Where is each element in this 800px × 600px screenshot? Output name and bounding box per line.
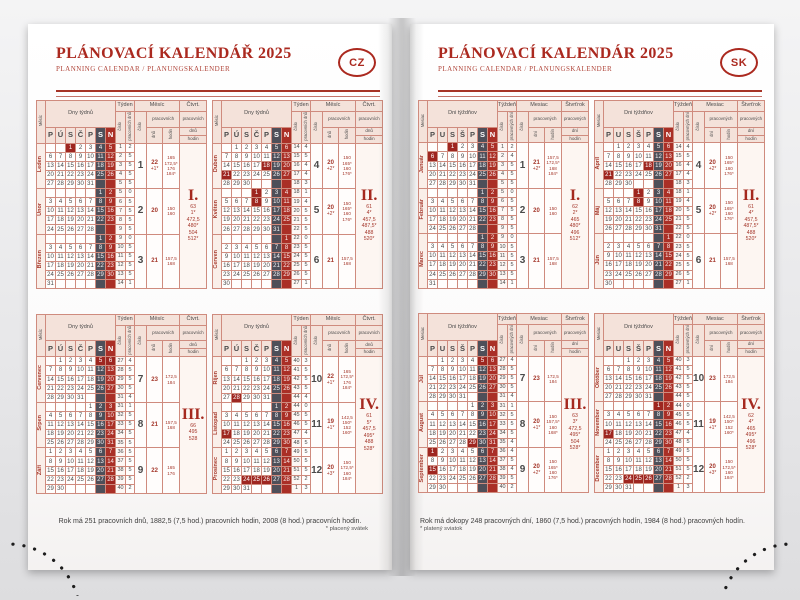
day-cell — [282, 484, 292, 493]
week-number-cell: 13 — [498, 270, 508, 279]
day-cell: 27 — [614, 225, 624, 234]
day-cell — [282, 280, 292, 289]
day-cell: 30 — [66, 393, 76, 402]
month-workdays-cell: 19+1* — [323, 402, 339, 448]
month-hours-header: hodín — [721, 341, 738, 357]
day-letter-6: S — [272, 341, 282, 357]
day-cell — [272, 393, 282, 402]
week-workdays-cell: 2 — [302, 475, 311, 484]
day-cell: 29 — [654, 438, 664, 447]
week-number-label: číslo — [500, 122, 504, 131]
day-cell: 3 — [262, 357, 272, 366]
day-cell — [222, 234, 232, 243]
day-letter-6: S — [478, 341, 488, 357]
month-hours-label: hodín — [727, 129, 731, 139]
day-cell: 28 — [614, 393, 624, 402]
day-cell: 13 — [644, 252, 654, 261]
day-cell: 1 — [478, 188, 488, 197]
day-cell — [488, 279, 498, 288]
month-hours-75: 150165* — [545, 459, 561, 470]
day-cell: 27 — [634, 438, 644, 447]
day-cell: 24 — [468, 170, 478, 179]
week-workdays-cell: 5 — [684, 384, 693, 393]
day-cell: 9 — [458, 152, 468, 161]
month-hours-cell: 150165*160176* — [545, 447, 562, 492]
weekday-group-header: Dny týdnů — [222, 101, 292, 128]
month-hours-wrap: 150157,5*160168* — [545, 412, 561, 437]
day-cell: 1 — [634, 188, 644, 197]
week-workdays-cell: 0 — [126, 189, 135, 198]
month-name-label: Prosinec — [214, 457, 220, 480]
day-cell: 6 — [272, 448, 282, 457]
day-cell: 11 — [654, 365, 664, 374]
week-row: Duben123456144420+2*150165*160176*II.614… — [213, 143, 383, 152]
day-cell: 4 — [478, 143, 488, 152]
day-cell — [634, 234, 644, 243]
month-workdays-cell: 20+1* — [529, 402, 545, 447]
day-cell — [624, 234, 634, 243]
month-column-label: Měsíc — [39, 329, 43, 340]
week-workdays-cell: 5 — [508, 420, 517, 429]
day-cell: 28 — [468, 270, 478, 279]
month-number-label: číslo — [138, 122, 142, 131]
day-cell: 15 — [66, 161, 76, 170]
week-number-cell: 16 — [674, 161, 684, 170]
day-cell: 29 — [252, 225, 262, 234]
day-cell: 27 — [428, 179, 438, 188]
month-name-cell: Júl — [419, 356, 428, 401]
day-cell: 3 — [106, 402, 116, 411]
week-number-cell: 27 — [116, 357, 126, 366]
day-cell: 3 — [46, 243, 56, 252]
month-workdays-value: 19 — [705, 419, 720, 425]
quarter-days-hours-header: dníhodín — [562, 127, 589, 143]
day-cell — [96, 180, 106, 189]
day-cell — [76, 234, 86, 243]
day-cell: 31 — [468, 179, 478, 188]
day-letter-4: Č — [252, 341, 262, 357]
day-cell: 29 — [86, 439, 96, 448]
day-cell: 28 — [654, 270, 664, 279]
week-workdays-cell: 5 — [508, 411, 517, 420]
day-cell: 19 — [56, 430, 66, 439]
month-name-label: Júl — [420, 375, 426, 383]
day-cell: 14 — [46, 375, 56, 384]
week-workdays-cell: 4 — [508, 152, 517, 161]
month-workdays-value: 23 — [147, 377, 162, 383]
day-cell — [614, 234, 624, 243]
day-cell: 2 — [438, 447, 448, 456]
month-hours-75: 150165* — [721, 155, 737, 166]
day-cell: 1 — [242, 357, 252, 366]
quarter-roman-numeral: IV. — [359, 397, 379, 413]
day-cell: 11 — [232, 421, 242, 430]
day-cell: 19 — [468, 465, 478, 474]
day-cell: 17 — [46, 216, 56, 225]
day-cell — [604, 234, 614, 243]
day-cell: 18 — [468, 375, 478, 384]
month-name-label: Október — [596, 367, 602, 388]
quarter-hours-label: hodín — [738, 348, 764, 356]
day-cell: 16 — [448, 375, 458, 384]
weekday-group-header: Dni týždňov — [428, 101, 498, 128]
week-workdays-cell: 0 — [508, 188, 517, 197]
day-cell: 21 — [468, 216, 478, 225]
month-name-label: Červen — [214, 250, 220, 269]
day-cell: 7 — [664, 447, 674, 456]
day-cell: 24 — [252, 170, 262, 179]
month-name-label: Jún — [596, 255, 602, 265]
day-cell: 18 — [242, 261, 252, 270]
week-workdays-cell: 3 — [302, 484, 311, 493]
day-cell: 26 — [624, 438, 634, 447]
day-cell: 1 — [46, 448, 56, 457]
week-workdays-cell: 4 — [684, 170, 693, 179]
day-cell: 15 — [478, 252, 488, 261]
day-cell: 22 — [448, 170, 458, 179]
day-cell: 5 — [252, 243, 262, 252]
month-hours-cell: 157,5168 — [339, 234, 356, 289]
week-number-cell: 30 — [498, 384, 508, 393]
day-cell: 17 — [242, 466, 252, 475]
day-cell: 8 — [634, 197, 644, 206]
day-cell: 5 — [488, 143, 498, 152]
day-cell: 23 — [232, 475, 242, 484]
day-cell: 27 — [76, 270, 86, 279]
day-cell: 18 — [252, 466, 262, 475]
week-number-cell: 44 — [674, 393, 684, 402]
month-workdays-value: 20 — [529, 419, 544, 425]
day-cell: 26 — [66, 270, 76, 279]
day-cell: 11 — [262, 152, 272, 161]
page-subtitle: PLANNING CALENDAR / PLANUNGSKALENDER — [438, 65, 762, 73]
week-number-cell: 24 — [292, 252, 302, 261]
day-cell: 21 — [614, 384, 624, 393]
day-cell: 8 — [624, 365, 634, 374]
day-cell: 24 — [46, 270, 56, 279]
month-number-cell: 7 — [517, 356, 529, 401]
quarter-group-header: Štvrťrok — [562, 101, 589, 112]
day-cell: 16 — [604, 261, 614, 270]
month-number-cell: 12 — [693, 447, 705, 492]
day-cell: 11 — [644, 152, 654, 161]
quarter-hours-75: 457,5487,5* — [744, 217, 759, 230]
day-cell: 13 — [262, 252, 272, 261]
day-cell: 23 — [614, 475, 624, 484]
week-workdays-cell: 2 — [684, 475, 693, 484]
month-number-header: číslo — [517, 112, 529, 143]
week-workdays-cell: 2 — [126, 143, 135, 152]
day-cell: 9 — [478, 411, 488, 420]
day-cell: 18 — [438, 261, 448, 270]
day-letter-5: P — [468, 341, 478, 357]
day-letter-6: S — [654, 127, 664, 143]
day-letter-3: S — [242, 341, 252, 357]
day-cell — [664, 179, 674, 188]
day-cell: 8 — [468, 411, 478, 420]
quarter-summary-wrap: IV.624*465495*496528* — [738, 394, 764, 456]
day-cell: 6 — [614, 197, 624, 206]
month-hours-wrap: 157,5168 — [339, 254, 355, 269]
month-hours-8: 176184* — [339, 380, 355, 391]
day-letter-5: P — [86, 341, 96, 357]
month-name-label: September — [420, 454, 426, 482]
day-cell: 21 — [644, 429, 654, 438]
week-number-label: číslo — [294, 336, 298, 345]
day-cell: 28 — [458, 438, 468, 447]
week-workdays-cell: 5 — [126, 384, 135, 393]
month-number-header: číslo — [311, 325, 323, 357]
day-cell — [106, 484, 116, 493]
day-cell: 2 — [644, 188, 654, 197]
day-cell: 15 — [448, 161, 458, 170]
day-cell: 23 — [282, 430, 292, 439]
day-cell: 12 — [644, 456, 654, 465]
month-column-header: Měsíc — [213, 101, 222, 144]
week-workdays-cell: 1 — [684, 279, 693, 288]
week-number-cell: 15 — [292, 152, 302, 161]
day-letter-2: U — [438, 341, 448, 357]
day-cell: 30 — [604, 279, 614, 288]
day-cell: 23 — [664, 429, 674, 438]
day-cell: 21 — [468, 261, 478, 270]
month-paid-holiday-value: +2* — [323, 212, 338, 217]
day-cell: 2 — [488, 188, 498, 197]
day-cell: 24 — [654, 216, 664, 225]
day-cell: 11 — [478, 152, 488, 161]
day-cell: 13 — [232, 207, 242, 216]
month-workdays-cell: 20+2* — [529, 447, 545, 492]
day-cell: 27 — [644, 270, 654, 279]
day-cell: 8 — [654, 411, 664, 420]
month-name-label: Květen — [214, 200, 220, 218]
day-cell: 9 — [262, 198, 272, 207]
week-number-cell: 11 — [116, 252, 126, 261]
day-cell: 3 — [86, 143, 96, 152]
week-number-cell: 43 — [292, 384, 302, 393]
month-number-label: číslo — [520, 122, 524, 131]
week-workdays-cell: 4 — [684, 429, 693, 438]
month-number-cell: 2 — [135, 189, 147, 234]
day-cell: 21 — [604, 170, 614, 179]
month-group-header: Mesiac — [693, 101, 738, 112]
calendar-table-q1: MesiacDni týždňovTýždeňMesiacŠtvrťrokčís… — [418, 100, 589, 289]
week-workdays-cell: 5 — [126, 198, 135, 207]
day-letter-5: P — [262, 127, 272, 143]
day-cell — [664, 279, 674, 288]
month-hours-75: 165172,5* — [339, 369, 355, 380]
day-cell: 14 — [232, 375, 242, 384]
day-cell — [56, 280, 66, 289]
calendar-spread: PLÁNOVACÍ KALENDÁŘ 2025 PLANNING CALENDA… — [0, 0, 800, 600]
day-cell: 30 — [252, 393, 262, 402]
quarter-hours-8: 504528* — [570, 439, 581, 452]
day-cell — [428, 143, 438, 152]
day-cell: 30 — [488, 270, 498, 279]
day-cell: 10 — [106, 411, 116, 420]
day-cell: 1 — [86, 402, 96, 411]
weekday-group-header: Dny týdnů — [46, 101, 116, 128]
day-cell: 7 — [654, 243, 664, 252]
day-cell: 14 — [604, 161, 614, 170]
month-days-header: dnů — [147, 341, 163, 357]
day-cell: 19 — [252, 261, 262, 270]
week-workdays-cell: 5 — [302, 448, 311, 457]
day-cell: 28 — [624, 225, 634, 234]
day-cell: 15 — [96, 207, 106, 216]
week-workdays-cell: 5 — [126, 243, 135, 252]
month-workdays-value: 21 — [529, 160, 544, 166]
week-workdays-cell: 5 — [126, 207, 135, 216]
page-header-sk: PLÁNOVACÍ KALENDÁR 2025 PLANNING CALENDA… — [438, 46, 762, 88]
day-cell: 9 — [448, 365, 458, 374]
week-number-cell: 22 — [292, 234, 302, 243]
month-working-header: pracovných — [705, 325, 738, 341]
day-cell: 24 — [66, 475, 76, 484]
day-cell: 17 — [428, 261, 438, 270]
month-number-header: číslo — [135, 112, 147, 144]
month-workdays-value: 22 — [147, 468, 162, 474]
day-cell: 5 — [438, 411, 448, 420]
day-cell: 3 — [66, 448, 76, 457]
day-letter-3: S — [66, 127, 76, 143]
month-workdays-cell: 20+3* — [705, 447, 721, 492]
day-cell: 13 — [634, 420, 644, 429]
day-cell: 11 — [624, 252, 634, 261]
month-paid-holiday-value: +2* — [323, 167, 338, 172]
day-cell: 28 — [282, 475, 292, 484]
week-number-cell: 11 — [498, 252, 508, 261]
day-cell: 28 — [232, 393, 242, 402]
week-number-cell: 2 — [116, 152, 126, 161]
quarter-tables-cz: MěsícDny týdnůTýdenMěsícČtvrt.číslopraco… — [36, 100, 384, 492]
day-cell: 28 — [438, 179, 448, 188]
day-letter-2: Ú — [56, 341, 66, 357]
week-number-cell: 20 — [292, 207, 302, 216]
day-cell: 3 — [488, 402, 498, 411]
week-number-cell: 1 — [674, 484, 684, 493]
day-cell: 17 — [232, 261, 242, 270]
week-number-cell: 12 — [498, 261, 508, 270]
day-cell: 16 — [478, 420, 488, 429]
day-cell: 24 — [428, 270, 438, 279]
day-cell: 23 — [66, 384, 76, 393]
day-cell: 26 — [468, 475, 478, 484]
day-cell: 2 — [232, 448, 242, 457]
day-cell — [66, 484, 76, 493]
day-cell: 22 — [468, 429, 478, 438]
month-name-cell: Máj — [595, 188, 604, 233]
week-workdays-cell: 5 — [684, 420, 693, 429]
month-working-header: pracovných — [529, 325, 562, 341]
day-cell: 1 — [96, 189, 106, 198]
day-cell — [428, 188, 438, 197]
day-cell: 27 — [272, 475, 282, 484]
day-cell: 4 — [96, 143, 106, 152]
quarter-summary-wrap: III.66495528 — [180, 404, 206, 447]
month-days-label: dnů — [152, 344, 156, 351]
week-workdays-cell: 5 — [126, 261, 135, 270]
week-number-header: číslo — [116, 112, 126, 144]
month-paid-holiday-value: +2* — [529, 167, 544, 172]
day-cell — [438, 234, 448, 243]
month-hours-8: 168 — [339, 261, 355, 266]
day-cell: 27 — [96, 475, 106, 484]
day-cell: 24 — [272, 216, 282, 225]
day-cell: 23 — [624, 170, 634, 179]
week-number-cell: 12 — [116, 261, 126, 270]
month-name-label: Červenec — [38, 365, 44, 390]
day-letter-3: S — [66, 341, 76, 357]
quarter-hours-label: hodin — [180, 135, 206, 143]
quarter-summary-cell: IV.615*457,5495*488528* — [356, 357, 383, 494]
day-cell: 27 — [664, 170, 674, 179]
day-cell: 6 — [428, 152, 438, 161]
quarter-summary-cell: II.614*457,5487,5*488520* — [738, 143, 765, 288]
month-workdays-cell: 21 — [147, 402, 163, 448]
day-cell: 17 — [468, 161, 478, 170]
day-cell: 31 — [654, 225, 664, 234]
day-cell: 21 — [56, 170, 66, 179]
day-cell: 25 — [262, 170, 272, 179]
week-workdays-cell: 3 — [302, 357, 311, 366]
quarter-hours-75: 465480* — [570, 217, 581, 230]
day-cell: 22 — [242, 384, 252, 393]
day-cell: 29 — [56, 393, 66, 402]
day-cell: 1 — [604, 447, 614, 456]
quarter-hours-8: 504512* — [188, 230, 199, 243]
day-cell — [478, 484, 488, 493]
day-cell: 25 — [614, 438, 624, 447]
week-workdays-cell: 5 — [126, 366, 135, 375]
day-cell — [478, 393, 488, 402]
day-cell: 14 — [458, 420, 468, 429]
week-workdays-cell: 5 — [684, 152, 693, 161]
month-name-cell: Listopad — [213, 402, 222, 448]
month-hours-wrap: 142,5150*152160* — [339, 413, 355, 438]
day-cell: 25 — [468, 384, 478, 393]
month-hours-cell: 150160 — [545, 188, 562, 233]
week-workdays-cell: 5 — [508, 206, 517, 215]
week-workdays-cell: 4 — [302, 143, 311, 152]
day-cell: 21 — [76, 430, 86, 439]
day-cell: 16 — [262, 207, 272, 216]
day-cell — [262, 180, 272, 189]
day-cell: 28 — [262, 439, 272, 448]
day-cell: 2 — [262, 189, 272, 198]
day-cell: 10 — [272, 198, 282, 207]
week-workdays-cell: 5 — [508, 243, 517, 252]
month-paid-holiday-value: +1* — [323, 426, 338, 431]
day-cell: 12 — [438, 420, 448, 429]
day-cell: 10 — [428, 252, 438, 261]
day-cell: 17 — [614, 261, 624, 270]
week-number-cell: 27 — [292, 280, 302, 289]
day-letter-1: P — [604, 341, 614, 357]
day-cell: 4 — [468, 356, 478, 365]
week-number-cell: 19 — [674, 197, 684, 206]
week-workdays-label: pracovných dní — [510, 325, 514, 353]
day-cell: 11 — [438, 252, 448, 261]
quarter-working-header: pracovných — [562, 325, 589, 341]
day-cell: 20 — [428, 170, 438, 179]
day-cell: 7 — [56, 152, 66, 161]
month-hours-wrap: 150165*160176* — [339, 153, 355, 178]
day-cell: 10 — [624, 456, 634, 465]
day-cell: 20 — [272, 466, 282, 475]
day-cell: 25 — [76, 475, 86, 484]
day-cell: 26 — [282, 384, 292, 393]
